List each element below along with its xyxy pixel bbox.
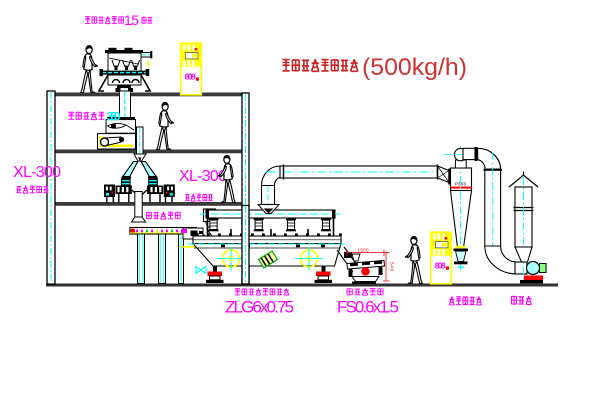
svg-text:FS0.6x1.5: FS0.6x1.5 bbox=[337, 298, 399, 317]
svg-text:(500kg/h): (500kg/h) bbox=[362, 54, 467, 81]
svg-text:1500: 1500 bbox=[358, 248, 369, 253]
svg-text:XL-300: XL-300 bbox=[179, 168, 227, 185]
svg-text:350: 350 bbox=[107, 110, 121, 124]
svg-text:540: 540 bbox=[390, 262, 395, 271]
svg-text:1.5: 1.5 bbox=[124, 12, 139, 28]
svg-text:ZLG6x0.75: ZLG6x0.75 bbox=[225, 298, 294, 317]
svg-text:XL-300: XL-300 bbox=[13, 164, 61, 181]
